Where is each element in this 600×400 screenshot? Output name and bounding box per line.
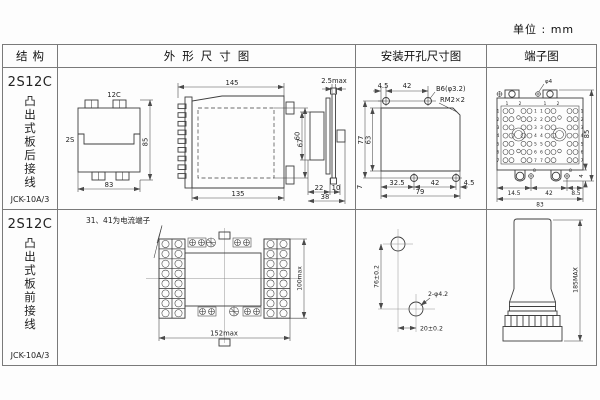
svg-text:7: 7 (540, 158, 543, 163)
terminal-cell-row1: φ4 1111222233334444555566667777121288 (487, 68, 596, 210)
svg-text:6: 6 (534, 150, 537, 155)
model-label: 2S12C (8, 75, 53, 90)
technical-drawing-page: 单位 : mm 结构 外形尺寸图 安装开孔尺寸图 端子图 2S12C 凸出式板后… (0, 0, 600, 400)
svg-text:2: 2 (534, 117, 537, 122)
terminal-hole-grid: 1111222233334444555566667777121288 (497, 101, 584, 173)
mounting-type-label: 凸出式板后接线 (22, 95, 38, 190)
svg-text:1: 1 (497, 109, 500, 114)
label-12c: 12C (107, 91, 121, 99)
svg-text:1: 1 (506, 101, 509, 106)
outline-drawing-front-mount: 31、41为电流端子 152max 100max (58, 210, 355, 365)
spec-table: 结构 外形尺寸图 安装开孔尺寸图 端子图 2S12C 凸出式板后接线 JCK-1… (2, 44, 597, 366)
dim-front-width: 83 (105, 181, 114, 189)
header-terminal: 端子图 (487, 45, 596, 68)
svg-text:4: 4 (497, 133, 500, 138)
label-phi4: φ4 (545, 79, 553, 85)
terminal-drawing-row2: 185MAX (487, 210, 596, 365)
svg-text:3: 3 (540, 125, 543, 130)
dim-hole-vertical: 76±0.2 (374, 265, 381, 288)
dim-mount-bot1: 32.5 (389, 179, 404, 187)
header-mounting: 安装开孔尺寸图 (356, 45, 487, 68)
dim-side-bottom: 135 (232, 190, 245, 198)
svg-text:1: 1 (544, 101, 547, 106)
svg-text:7: 7 (534, 158, 537, 163)
model-label: 2S12C (8, 217, 53, 232)
dim-terminal-bot3: 8.5 (571, 191, 581, 197)
dim-front2-width: 152max (210, 330, 238, 338)
svg-text:5: 5 (540, 141, 543, 146)
svg-text:7: 7 (581, 158, 584, 163)
mounting-drawing-row2: 76±0.2 20±0.2 2-φ4.2 (356, 210, 487, 365)
dim-rear-gap: 2.5max (321, 77, 347, 85)
label-hole-diameter: 2-φ4.2 (428, 291, 448, 298)
label-2s: 2S (66, 136, 75, 144)
dim-mount-top1: 4.5 (378, 82, 389, 90)
svg-text:2: 2 (581, 117, 584, 122)
dim-terminal-total: 83 (536, 203, 544, 209)
structure-cell-row2: 2S12C 凸出式板前接线 JCK-10A/3 (3, 210, 58, 365)
dim-mount-inner-h: 63 (365, 136, 373, 145)
svg-text:1: 1 (581, 109, 584, 114)
dim-front-height: 85 (142, 138, 150, 147)
dim-terminal-bot1: 14.5 (508, 191, 521, 197)
dim-rear-total: 38 (321, 193, 330, 201)
svg-text:6: 6 (581, 150, 584, 155)
svg-text:2: 2 (540, 117, 543, 122)
mounting-cell-row1: 4.5 42 B6(φ3.2) RM2×2 77 63 7 (356, 68, 487, 210)
outline-cell-row1: 85 83 12C 2S 145 (58, 68, 356, 210)
label-screw-spec: RM2×2 (440, 96, 465, 104)
svg-text:2: 2 (519, 101, 522, 106)
svg-text:2: 2 (557, 101, 560, 106)
svg-text:3: 3 (534, 125, 537, 130)
dim-mount-offset: 7 (356, 185, 364, 189)
svg-text:4: 4 (534, 133, 537, 138)
mounting-type-label: 凸出式板前接线 (22, 237, 38, 332)
svg-text:5: 5 (581, 141, 584, 146)
dim-mount-total: 79 (416, 188, 425, 196)
dim-terminal-bot2: 42 (545, 191, 553, 197)
terminal-cell-row2: 185MAX (487, 210, 596, 365)
svg-text:7: 7 (497, 158, 500, 163)
dim-overall-height: 185MAX (573, 266, 580, 292)
dim-front2-height: 100max (297, 266, 304, 291)
relay-type-label: JCK-10A/3 (11, 351, 50, 360)
dim-mount-bot3: 4.5 (464, 179, 475, 187)
svg-text:5: 5 (497, 141, 500, 146)
unit-label: 单位 : mm (513, 21, 574, 37)
mounting-cell-row2: 76±0.2 20±0.2 2-φ4.2 (356, 210, 487, 365)
header-outline: 外形尺寸图 (58, 45, 356, 68)
svg-text:5: 5 (534, 141, 537, 146)
svg-text:8: 8 (569, 168, 572, 173)
svg-text:3: 3 (497, 125, 500, 130)
structure-cell-row1: 2S12C 凸出式板后接线 JCK-10A/3 (3, 68, 58, 210)
dim-rear-height: 60 (294, 132, 302, 141)
svg-text:4: 4 (540, 133, 543, 138)
header-structure: 结构 (3, 45, 58, 68)
dim-hole-horizontal: 20±0.2 (420, 326, 443, 333)
dim-terminal-offset: 4 (579, 174, 585, 178)
label-hole-spec: B6(φ3.2) (436, 85, 466, 93)
svg-text:8: 8 (533, 168, 536, 173)
current-terminal-note: 31、41为电流端子 (86, 215, 151, 225)
svg-text:2: 2 (497, 117, 500, 122)
base-comb (511, 316, 553, 327)
mounting-drawing-row1: 4.5 42 B6(φ3.2) RM2×2 77 63 7 (356, 68, 487, 210)
relay-type-label: JCK-10A/3 (11, 195, 50, 204)
outline-cell-row2: 31、41为电流端子 152max 100max (58, 210, 356, 365)
dim-terminal-height: 85 (583, 130, 591, 139)
dim-side-top: 145 (226, 79, 239, 87)
svg-text:1: 1 (540, 109, 543, 114)
dim-rear-w2: 10 (332, 184, 341, 192)
dim-mount-bot2: 42 (431, 179, 440, 187)
svg-text:1: 1 (534, 109, 537, 114)
svg-text:6: 6 (497, 150, 500, 155)
svg-text:6: 6 (540, 150, 543, 155)
terminal-drawing-row1: φ4 1111222233334444555566667777121288 (487, 68, 596, 210)
outline-drawing-rear-mount: 85 83 12C 2S 145 (58, 68, 355, 210)
svg-text:3: 3 (581, 125, 584, 130)
dim-mount-top2: 42 (403, 82, 412, 90)
dim-rear-w1: 22 (315, 184, 324, 192)
